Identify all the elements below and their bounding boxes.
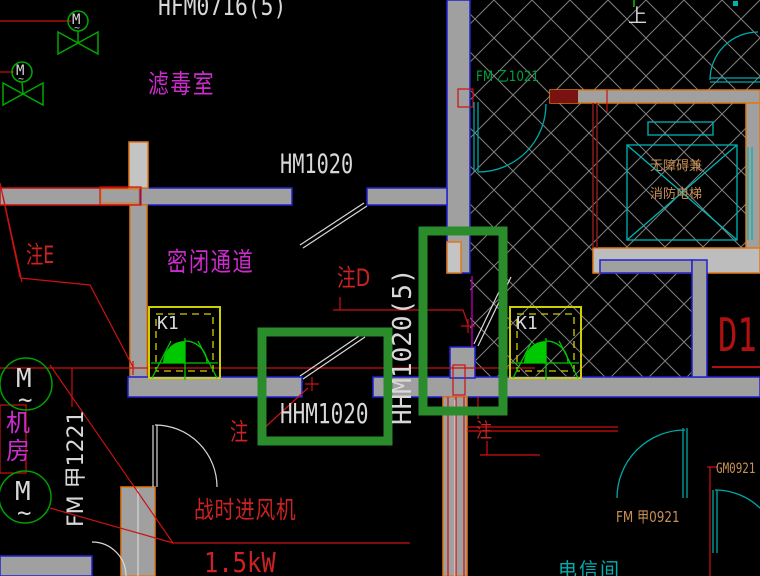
door-label-hfm0716: HFM0716(5): [158, 0, 286, 20]
room-label-telecom: 电信间: [558, 561, 621, 576]
fan-label: 战时进风机: [194, 498, 297, 522]
wall-mid-left: [128, 377, 302, 397]
door-label-hm1020: HM1020: [280, 151, 353, 178]
door-arc-machine-room: [153, 425, 217, 487]
door-leaf-hm1020: [300, 203, 367, 248]
wall-stub-upper: [129, 142, 148, 188]
door-label-fm-jia-0921: FM 甲0921: [616, 510, 680, 525]
motor-tilde-bottom: ~: [17, 501, 31, 525]
note-bottom-left-label: 注: [230, 420, 248, 444]
cad-floorplan-view: HFM0716(5) 滤毒室 HM1020 密闭通道 注E 注D HHM1020…: [0, 0, 760, 576]
up-marker: 上: [628, 7, 647, 26]
room-label-machine-room: 机房: [6, 410, 36, 465]
wall-d1-top: [600, 260, 692, 273]
door-leaf-hhm1020: [300, 334, 365, 379]
wall-stub-door: [450, 347, 475, 378]
d1-label: D1: [718, 312, 757, 358]
floorplan-drawing: [0, 0, 760, 576]
wall-vertical-left: [130, 205, 147, 377]
cyan-dot: [733, 1, 738, 6]
wall-corner-bl: [0, 556, 92, 576]
fan-power-label: 1.5kW: [204, 549, 276, 576]
door-label-hhm1020-5: HHM1020(5): [388, 268, 418, 425]
door-arc-gm0921: [713, 490, 760, 553]
room-label-filter-room: 滤毒室: [148, 72, 215, 98]
wall-mid-right: [373, 377, 760, 397]
elevator-label-line1: 无障碍兼: [650, 160, 702, 173]
door-label-fm-jia-1221: FM 甲1221: [64, 410, 90, 527]
note-d-label: 注D: [337, 266, 370, 290]
note-e-label: 注E: [26, 243, 54, 267]
wall-top-mid: [140, 188, 292, 205]
k1-label-right: K1: [516, 315, 538, 333]
note-bottom-right-label: 注: [476, 420, 492, 440]
elevator-label-line2: 消防电梯: [650, 188, 702, 201]
valve-tilde-bottom: ~: [18, 75, 24, 85]
wall-lobby-top: [550, 90, 760, 103]
door-label-fm-yi-1021: FM 乙1021: [476, 70, 539, 84]
wall-lobby-block: [550, 90, 578, 103]
wall-d1-side: [692, 260, 707, 377]
wall-top-left: [0, 188, 140, 205]
door-label-hhm1020: HHM1020: [280, 400, 369, 428]
valve-tilde-top: ~: [74, 24, 80, 34]
room-label-sealed-passage: 密闭通道: [167, 250, 254, 276]
motor-tilde-top: ~: [18, 388, 32, 412]
wall-block-small: [447, 242, 461, 273]
k1-label-left: K1: [157, 315, 179, 333]
door-arc-telecom: [617, 428, 687, 498]
wall-top-right: [367, 188, 447, 205]
door-label-gm0921: GM0921: [716, 462, 755, 476]
